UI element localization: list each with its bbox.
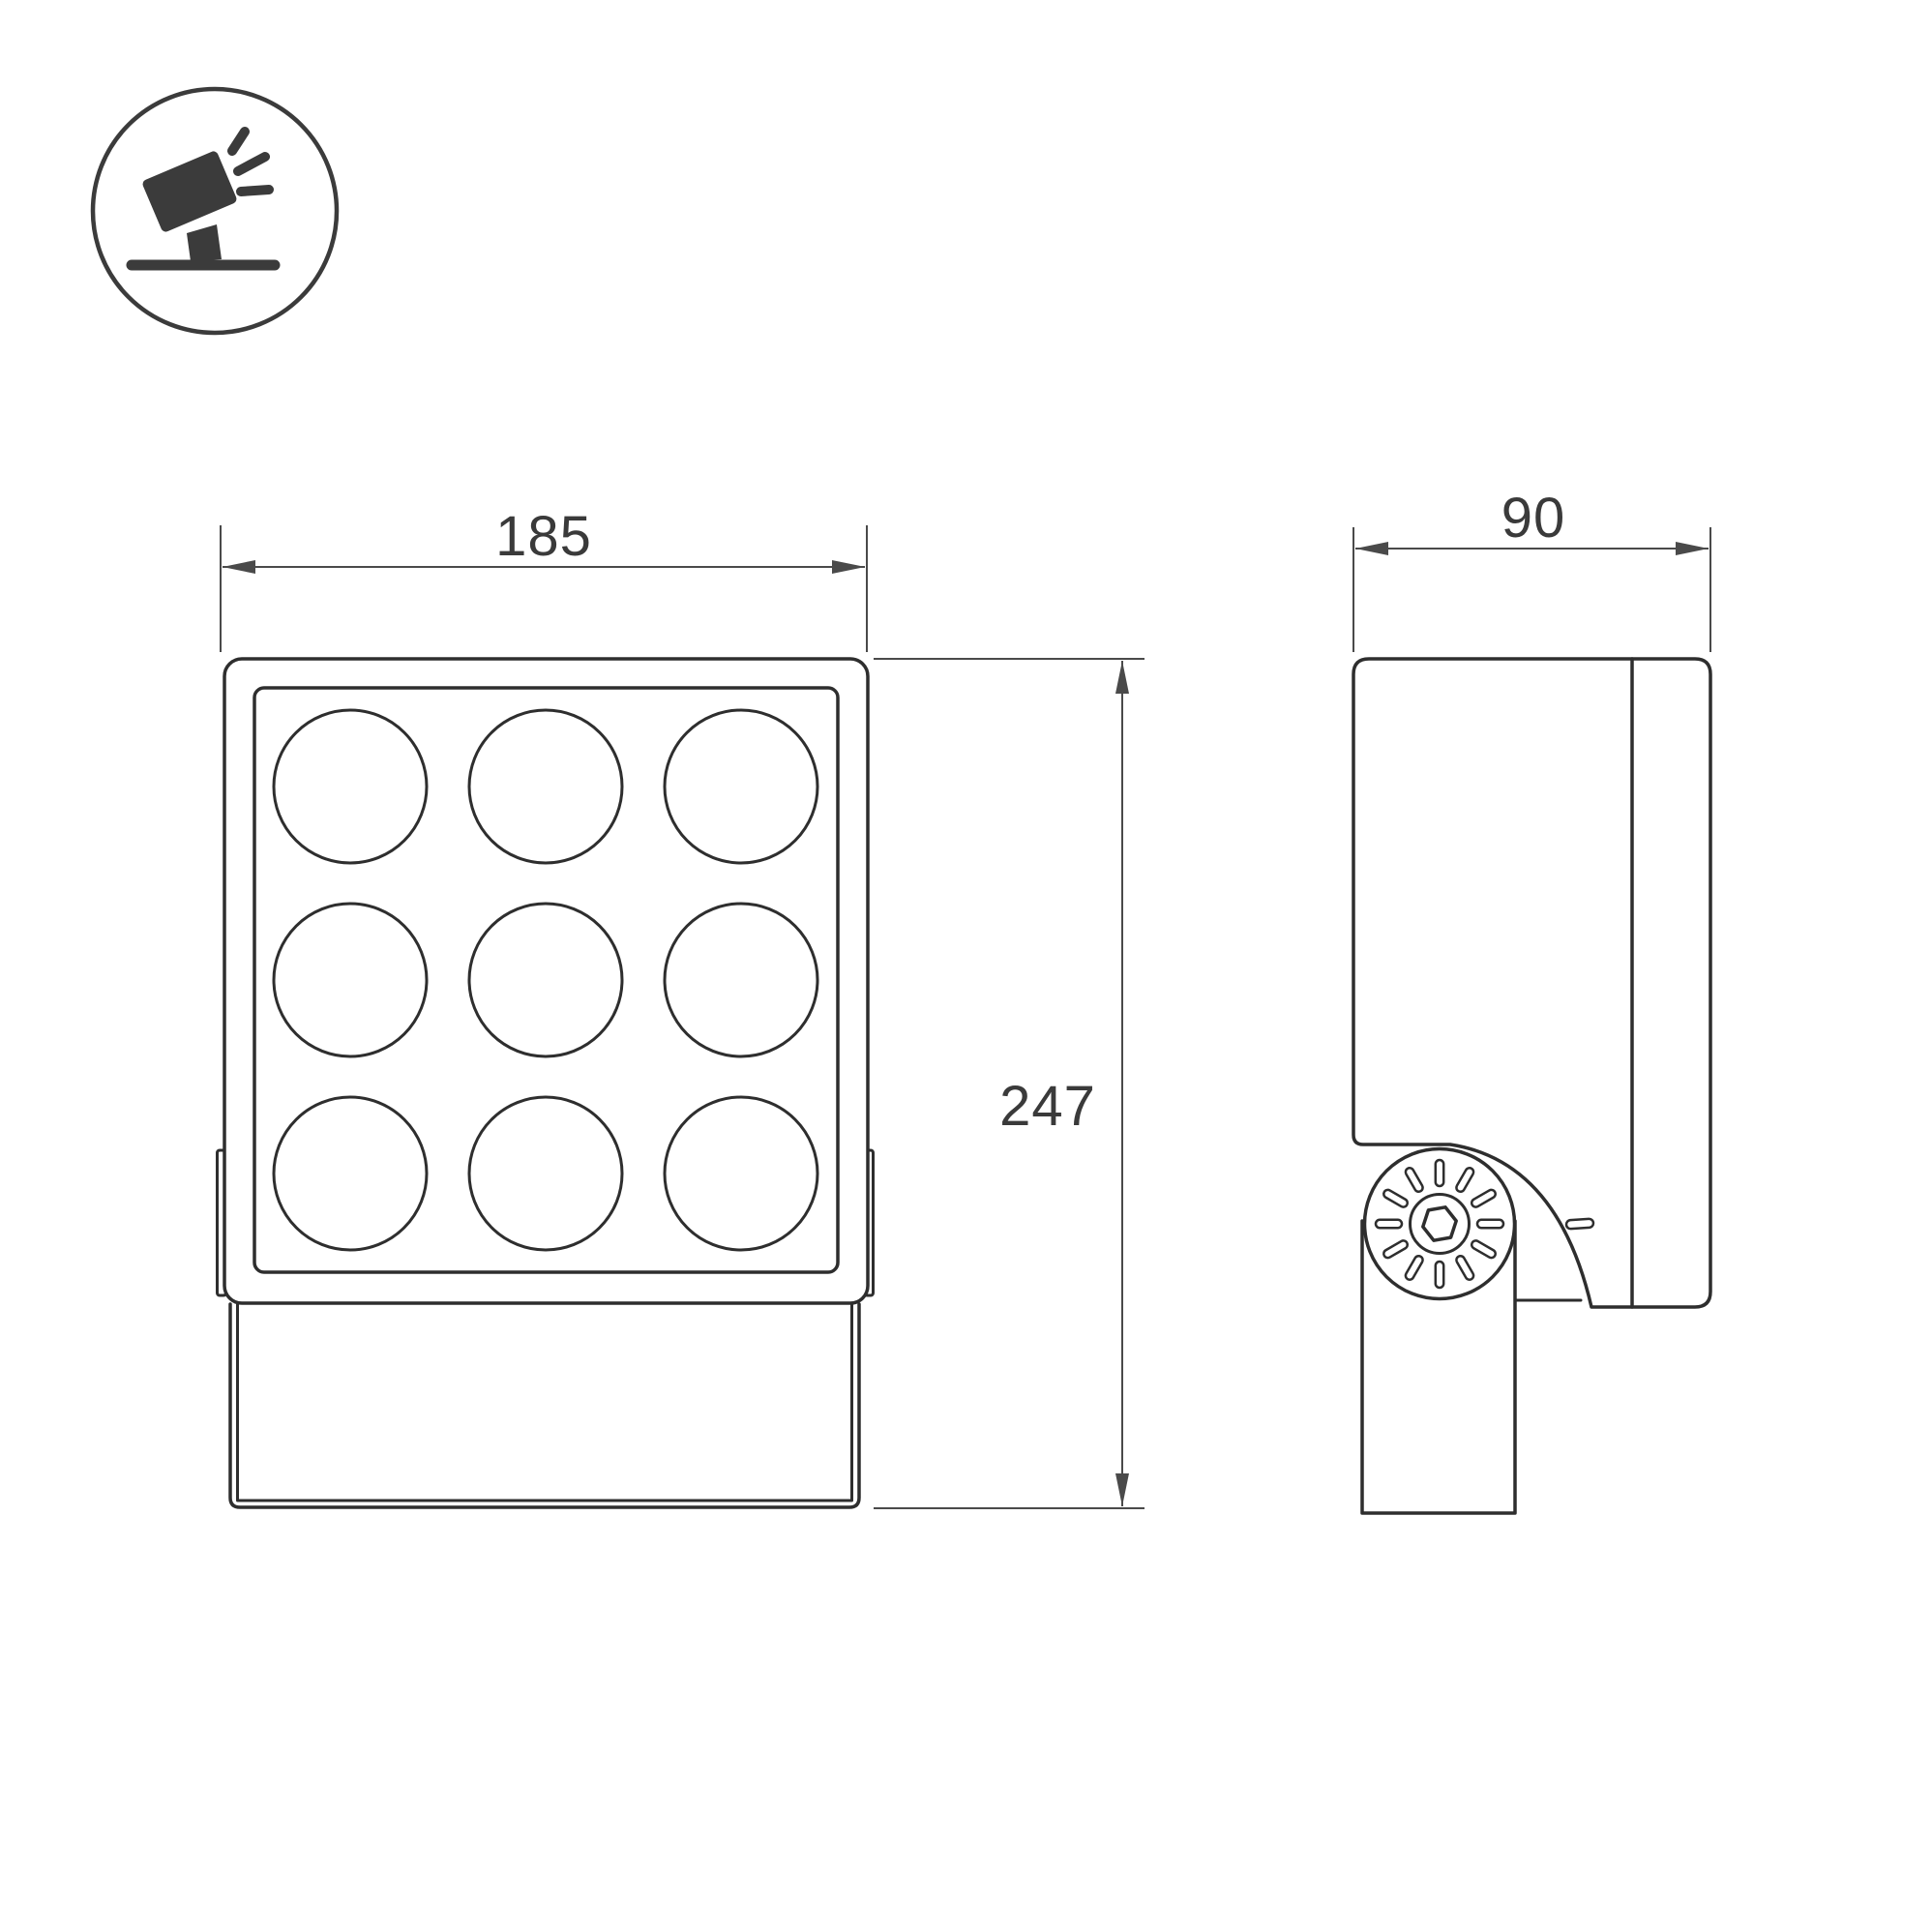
driver-housing-inner-line	[238, 1304, 852, 1501]
arrowhead-up	[1115, 661, 1129, 694]
driver-housing-outline	[230, 1304, 859, 1507]
side-view	[1353, 659, 1710, 1513]
drawing-canvas: 185 90 247	[0, 0, 1932, 1932]
hex-socket-icon	[1423, 1207, 1456, 1240]
height-value: 247	[999, 1075, 1096, 1138]
technical-drawing: 185 90 247	[0, 0, 1932, 1932]
width-value: 185	[495, 505, 592, 568]
dimension-height: 247	[874, 659, 1144, 1508]
tilted-floodlight-icon	[93, 89, 337, 333]
depth-value: 90	[1501, 487, 1566, 550]
icon-lamp-stand	[187, 224, 222, 261]
arrowhead-left	[223, 560, 255, 574]
tilt-adjustment-knob	[1365, 1149, 1515, 1299]
arrowhead-right	[1676, 542, 1709, 555]
arrowhead-down	[1115, 1473, 1129, 1506]
icon-lamp-head	[141, 150, 238, 233]
driver-housing	[230, 1304, 859, 1507]
arrowhead-right	[832, 560, 865, 574]
bracket-slot	[1566, 1219, 1594, 1230]
dimension-depth: 90	[1353, 487, 1710, 652]
front-view	[218, 659, 874, 1507]
arrowhead-left	[1355, 542, 1388, 555]
icon-light-rays	[232, 132, 269, 192]
dimension-width: 185	[221, 505, 867, 652]
lamp-head-frame	[224, 659, 868, 1303]
